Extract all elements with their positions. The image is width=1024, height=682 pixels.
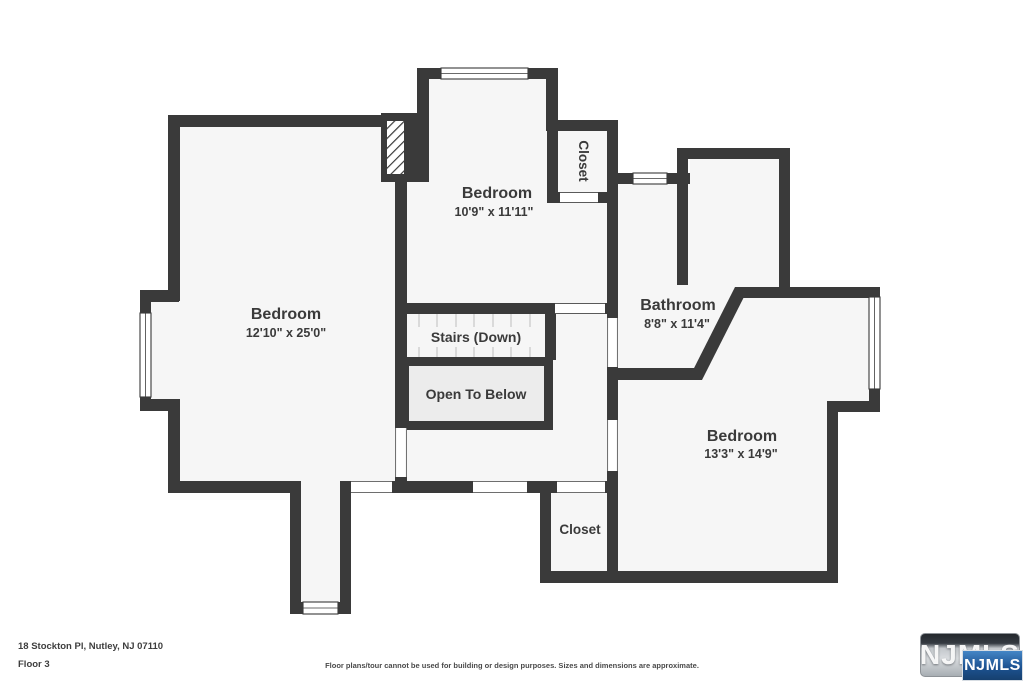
window-symbol-corridor [303, 602, 338, 614]
door-opening-right-bedroom [607, 420, 618, 471]
room-dims-bedroom-left: 12'10" x 25'0" [246, 326, 326, 340]
footer-address: 18 Stockton Pl, Nutley, NJ 07110 [18, 641, 163, 652]
window-symbol-left-bedroom [140, 313, 151, 397]
open-to-below-label: Open To Below [426, 386, 527, 402]
door-opening-bottom-closet [557, 481, 605, 493]
window-symbol-right-bedroom [869, 297, 880, 389]
door-opening-south-2 [473, 481, 527, 493]
room-name-bathroom: Bathroom [640, 297, 716, 314]
footer-disclaimer: Floor plans/tour cannot be used for buil… [0, 661, 1024, 670]
njmls-badge: NJMLS [962, 650, 1023, 681]
door-opening-top-bedroom [555, 303, 605, 314]
room-dims-bathroom: 8'8" x 11'4" [644, 317, 710, 331]
room-name-bedroom-left: Bedroom [251, 306, 321, 323]
room-name-bedroom-right: Bedroom [707, 428, 777, 445]
door-opening-bathroom [607, 318, 618, 367]
chimney-hatch [387, 121, 404, 174]
door-opening-south-1 [351, 481, 392, 493]
stairs-label: Stairs (Down) [431, 329, 521, 345]
window-symbol-bathroom [633, 173, 667, 184]
window-symbol-top-bedroom [441, 68, 528, 79]
room-name-bedroom-top: Bedroom [462, 185, 532, 202]
room-name-closet-bottom: Closet [559, 522, 601, 537]
room-dims-bedroom-right: 13'3" x 14'9" [704, 447, 777, 461]
door-opening-left-bedroom [395, 428, 407, 477]
room-name-closet-top: Closet [576, 140, 591, 182]
room-dims-bedroom-top: 10'9" x 11'11" [455, 205, 534, 219]
njmls-badge-text: NJMLS [964, 657, 1021, 675]
floor-plan: Bedroom 12'10" x 25'0" Bedroom 10'9" x 1… [0, 0, 1024, 682]
door-opening-top-closet [560, 192, 598, 203]
